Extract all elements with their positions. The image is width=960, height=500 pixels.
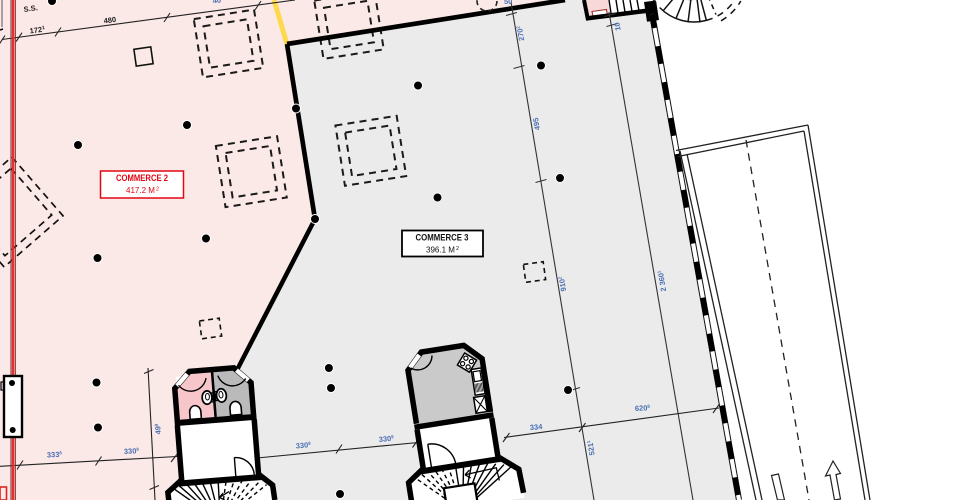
- svg-text:2: 2: [456, 246, 459, 252]
- svg-text:480: 480: [103, 15, 117, 26]
- svg-text:2: 2: [156, 187, 159, 193]
- svg-text:COMMERCE 3: COMMERCE 3: [416, 233, 469, 243]
- svg-text:COMMERCE 2: COMMERCE 2: [116, 173, 168, 183]
- svg-text:334: 334: [530, 422, 544, 432]
- svg-text:10: 10: [612, 22, 622, 32]
- svg-text:50: 50: [504, 0, 512, 6]
- svg-text:396.1 M: 396.1 M: [426, 245, 455, 255]
- svg-text:417.2 M: 417.2 M: [126, 185, 155, 195]
